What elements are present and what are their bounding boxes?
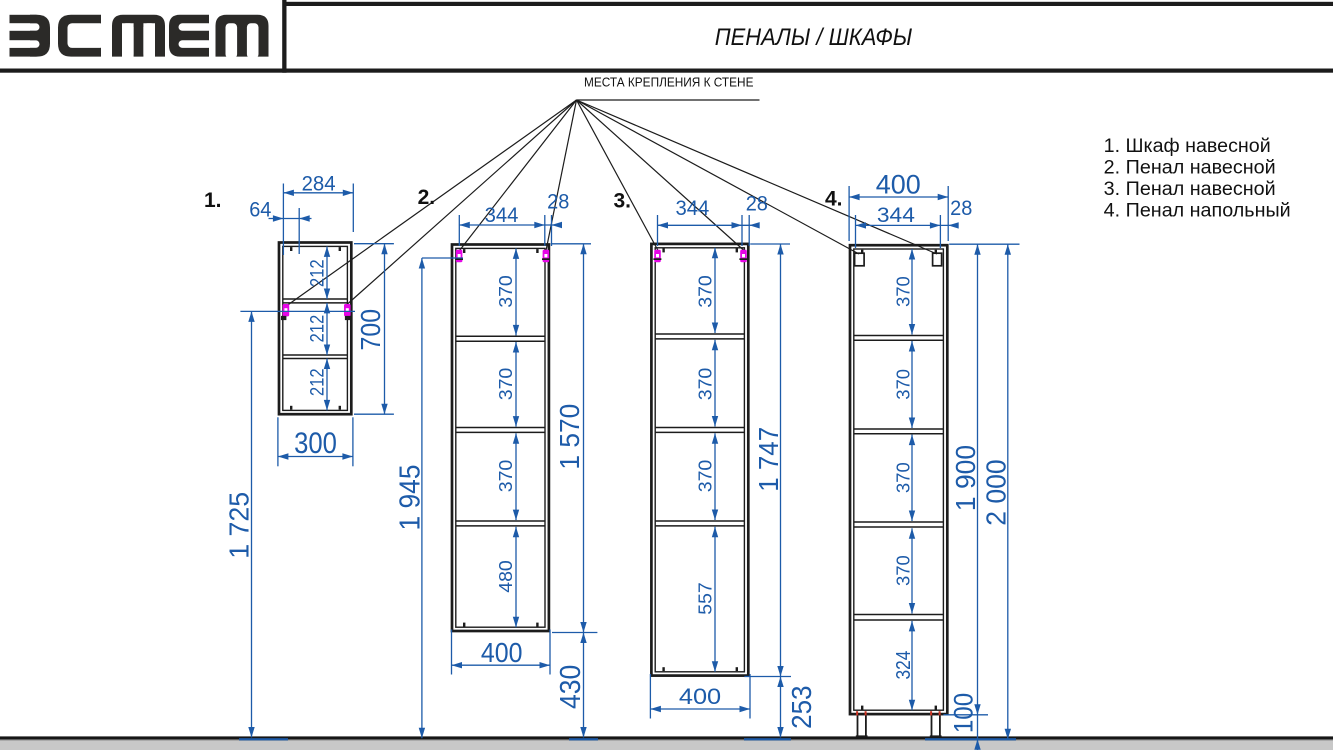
- svg-text:1 900: 1 900: [950, 445, 981, 511]
- svg-text:480: 480: [495, 560, 516, 593]
- svg-text:557: 557: [694, 582, 715, 615]
- svg-text:370: 370: [892, 369, 913, 400]
- svg-text:2. Пенал навесной: 2. Пенал навесной: [1104, 158, 1276, 179]
- svg-text:344: 344: [485, 204, 519, 227]
- svg-text:212: 212: [307, 259, 329, 287]
- svg-text:324: 324: [893, 651, 915, 680]
- svg-text:212: 212: [307, 368, 329, 396]
- svg-text:430: 430: [555, 665, 587, 709]
- svg-text:1 747: 1 747: [753, 427, 784, 492]
- svg-text:1. Шкаф навесной: 1. Шкаф навесной: [1104, 136, 1271, 157]
- svg-text:370: 370: [694, 275, 715, 308]
- svg-text:370: 370: [892, 462, 913, 493]
- svg-text:1 945: 1 945: [395, 465, 427, 531]
- svg-text:370: 370: [495, 368, 516, 401]
- svg-text:МЕСТА КРЕПЛЕНИЯ К СТЕНЕ: МЕСТА КРЕПЛЕНИЯ К СТЕНЕ: [584, 75, 754, 90]
- svg-text:300: 300: [294, 427, 337, 460]
- svg-text:370: 370: [495, 460, 516, 493]
- svg-text:3. Пенал навесной: 3. Пенал навесной: [1104, 179, 1276, 200]
- svg-text:4.: 4.: [825, 187, 843, 210]
- svg-text:3.: 3.: [614, 190, 632, 213]
- svg-text:253: 253: [786, 686, 817, 729]
- svg-text:2.: 2.: [418, 186, 436, 209]
- svg-text:28: 28: [547, 190, 569, 213]
- svg-text:284: 284: [302, 173, 336, 196]
- svg-text:28: 28: [746, 192, 768, 215]
- svg-text:370: 370: [495, 275, 516, 308]
- svg-text:2 000: 2 000: [980, 459, 1011, 525]
- svg-text:344: 344: [877, 204, 915, 227]
- svg-text:370: 370: [694, 368, 715, 401]
- svg-text:344: 344: [676, 197, 710, 220]
- svg-text:700: 700: [355, 309, 386, 351]
- svg-text:370: 370: [694, 460, 715, 493]
- svg-text:370: 370: [892, 276, 913, 307]
- svg-text:212: 212: [307, 315, 329, 343]
- svg-text:1.: 1.: [204, 189, 222, 212]
- svg-text:400: 400: [679, 684, 721, 709]
- svg-text:400: 400: [876, 170, 921, 200]
- svg-text:1 725: 1 725: [223, 492, 254, 559]
- svg-text:4. Пенал напольный: 4. Пенал напольный: [1104, 201, 1291, 222]
- svg-text:64: 64: [249, 198, 271, 221]
- svg-text:370: 370: [892, 555, 913, 586]
- svg-text:100: 100: [948, 693, 978, 733]
- svg-text:1 570: 1 570: [554, 404, 585, 470]
- svg-text:28: 28: [950, 197, 972, 220]
- svg-text:ПЕНАЛЫ / ШКАФЫ: ПЕНАЛЫ / ШКАФЫ: [715, 24, 913, 51]
- svg-text:400: 400: [481, 636, 523, 668]
